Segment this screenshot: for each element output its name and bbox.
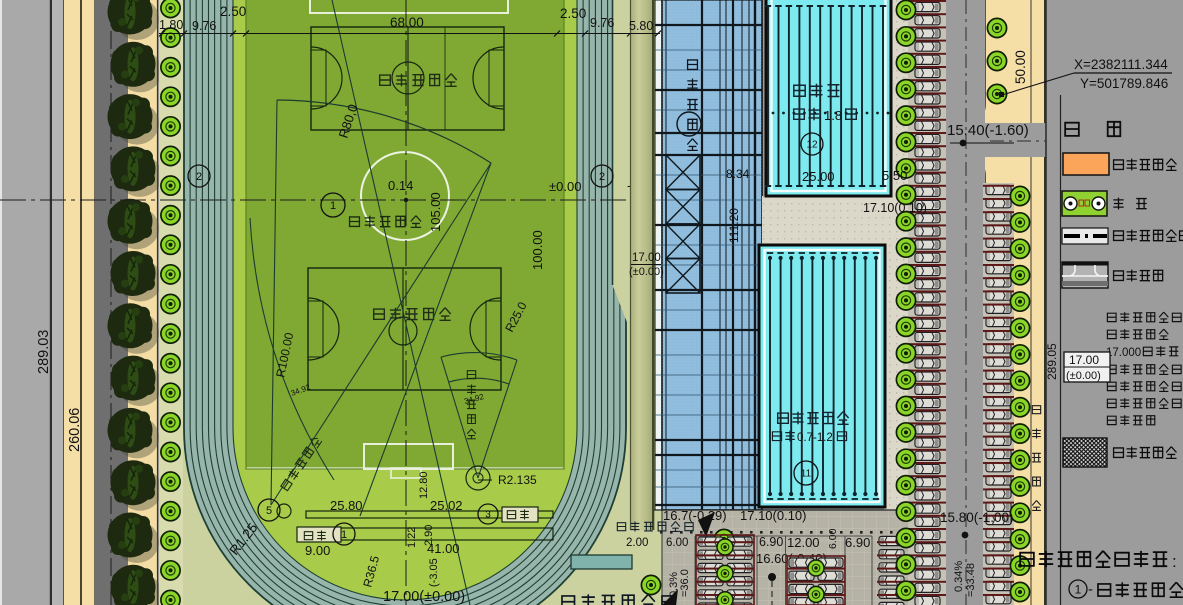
svg-text:12.00: 12.00: [787, 535, 820, 550]
svg-text:11: 11: [801, 469, 812, 480]
svg-text:=33.48: =33.48: [965, 563, 977, 597]
svg-text:6.00: 6.00: [666, 537, 688, 549]
svg-text:105.00: 105.00: [428, 192, 443, 232]
svg-text:±0.00: ±0.00: [549, 179, 581, 194]
svg-text:3: 3: [485, 510, 491, 521]
svg-text:1: 1: [341, 529, 347, 541]
svg-text:9.76: 9.76: [192, 19, 216, 33]
svg-text:289.03: 289.03: [36, 330, 52, 374]
svg-text:1.80: 1.80: [159, 18, 183, 32]
svg-text:12: 12: [806, 140, 818, 151]
svg-text::: :: [1172, 552, 1177, 571]
svg-text:100.00: 100.00: [530, 230, 545, 270]
svg-text:1.8: 1.8: [824, 108, 842, 123]
svg-text:8.34: 8.34: [726, 167, 750, 181]
svg-text:260.06: 260.06: [67, 408, 83, 452]
svg-text:0.14: 0.14: [388, 178, 413, 193]
svg-text:289.05: 289.05: [1045, 343, 1059, 380]
svg-text:111.20: 111.20: [727, 208, 741, 243]
svg-text:(±0.00): (±0.00): [629, 266, 664, 278]
svg-text:17.10(0.10): 17.10(0.10): [740, 508, 807, 523]
svg-text:15.80(-1.00): 15.80(-1.00): [940, 510, 1014, 525]
svg-text:17.00: 17.00: [632, 252, 661, 264]
svg-text:6.90: 6.90: [759, 535, 783, 549]
svg-text:Y=501789.846: Y=501789.846: [1080, 76, 1168, 91]
svg-text:9.00: 9.00: [305, 543, 330, 558]
svg-text:X=2382111.344: X=2382111.344: [1074, 57, 1168, 72]
svg-text:1: 1: [1075, 582, 1082, 596]
svg-text:-: -: [1088, 581, 1093, 598]
svg-text:1.22: 1.22: [406, 527, 418, 548]
svg-text:15.40(-1.60): 15.40(-1.60): [947, 122, 1029, 139]
svg-text:25.00: 25.00: [802, 169, 835, 184]
svg-text:50.00: 50.00: [1013, 50, 1028, 84]
svg-text:9.76: 9.76: [590, 16, 614, 30]
svg-text:2.50: 2.50: [560, 6, 586, 21]
svg-text:R2.135: R2.135: [498, 473, 537, 487]
svg-text:17.10(0.10): 17.10(0.10): [863, 201, 927, 215]
svg-text:41.00: 41.00: [427, 541, 460, 556]
svg-text:25.02: 25.02: [430, 498, 463, 513]
svg-text:17.000: 17.000: [1106, 347, 1141, 359]
svg-text:6.90: 6.90: [845, 535, 870, 550]
svg-text:6.00: 6.00: [827, 528, 839, 549]
svg-text:0.34%: 0.34%: [953, 561, 965, 592]
svg-text:5.50: 5.50: [882, 168, 907, 183]
svg-text:25.80: 25.80: [330, 498, 363, 513]
svg-text:1: 1: [330, 200, 336, 212]
svg-text:(-3.05: (-3.05: [428, 558, 440, 587]
svg-text:2.50: 2.50: [220, 4, 246, 19]
svg-text:2: 2: [599, 171, 605, 183]
svg-text:12.80: 12.80: [418, 471, 430, 499]
svg-text:2.00: 2.00: [626, 537, 648, 549]
svg-text:16.7(-0.29): 16.7(-0.29): [663, 508, 727, 523]
svg-text:68.00: 68.00: [390, 15, 424, 30]
svg-text:5: 5: [266, 505, 272, 517]
svg-text:2: 2: [196, 171, 202, 183]
svg-text:0.7-1.2: 0.7-1.2: [797, 432, 833, 444]
svg-text:(±0.00): (±0.00): [1066, 370, 1101, 382]
svg-text:=36.0: =36.0: [679, 569, 691, 597]
svg-text:17.00(±0.00): 17.00(±0.00): [383, 589, 465, 605]
svg-text:17.00: 17.00: [1069, 353, 1099, 367]
svg-text:5.80: 5.80: [629, 19, 653, 33]
